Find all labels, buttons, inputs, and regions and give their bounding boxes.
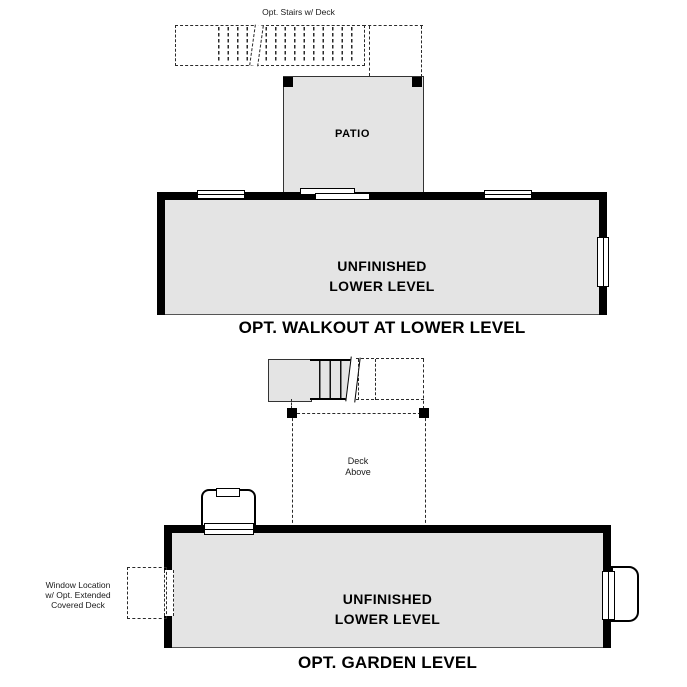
window-note-line2: w/ Opt. Extended (32, 590, 124, 600)
garden-window-top (204, 523, 254, 535)
deck-outline-inner-segment (369, 26, 370, 76)
walkout-room-label-line2: LOWER LEVEL (165, 276, 599, 296)
patio-post-left (283, 77, 293, 87)
walkout-window-left (197, 190, 245, 199)
deck-outline-top-segment (363, 25, 423, 26)
garden-stairs-dashed-line-2 (375, 359, 376, 400)
deck-above-label: Deck Above (292, 456, 424, 478)
deck-post-left (287, 408, 297, 418)
garden-stairs-dashed-top (356, 358, 424, 359)
garden-room-label-line1: UNFINISHED (172, 589, 603, 609)
opt-stairs-deck-label: Opt. Stairs w/ Deck (175, 7, 422, 17)
walkout-room-label-line1: UNFINISHED (165, 256, 599, 276)
patio-sliding-door-panel-2 (315, 193, 370, 200)
deck-above-label-line1: Deck (292, 456, 424, 467)
deck-outline-right-segment (421, 26, 422, 77)
garden-stairs-landing (268, 359, 312, 402)
deck-post-right (419, 408, 429, 418)
window-well-right (611, 566, 639, 622)
patio-label: PATIO (283, 128, 422, 140)
garden-stairs-dashed-line-1 (358, 359, 359, 400)
patio-post-right (412, 77, 422, 87)
walkout-room-label: UNFINISHED LOWER LEVEL (165, 256, 599, 296)
garden-stairs-dashed-right (423, 359, 424, 409)
deck-above-label-line2: Above (292, 467, 424, 478)
window-note-line3: Covered Deck (32, 600, 124, 610)
window-location-note: Window Location w/ Opt. Extended Covered… (32, 580, 124, 610)
floorplan-sheet: Opt. Stairs w/ Deck PATIO UNFINISHED LOW… (0, 0, 687, 687)
window-note-line1: Window Location (32, 580, 124, 590)
garden-stairs-dashed-bottom (356, 399, 424, 400)
walkout-title: OPT. WALKOUT AT LOWER LEVEL (157, 318, 607, 338)
garden-window-right (602, 571, 615, 620)
garden-room-label: UNFINISHED LOWER LEVEL (172, 589, 603, 629)
window-well-top-notch (216, 488, 240, 497)
garden-title: OPT. GARDEN LEVEL (164, 653, 611, 673)
walkout-window-right (484, 190, 532, 199)
walkout-left-wall (157, 192, 165, 315)
optional-window-outline (127, 567, 167, 619)
opt-stairs-treads (210, 27, 358, 63)
garden-room-label-line2: LOWER LEVEL (172, 609, 603, 629)
